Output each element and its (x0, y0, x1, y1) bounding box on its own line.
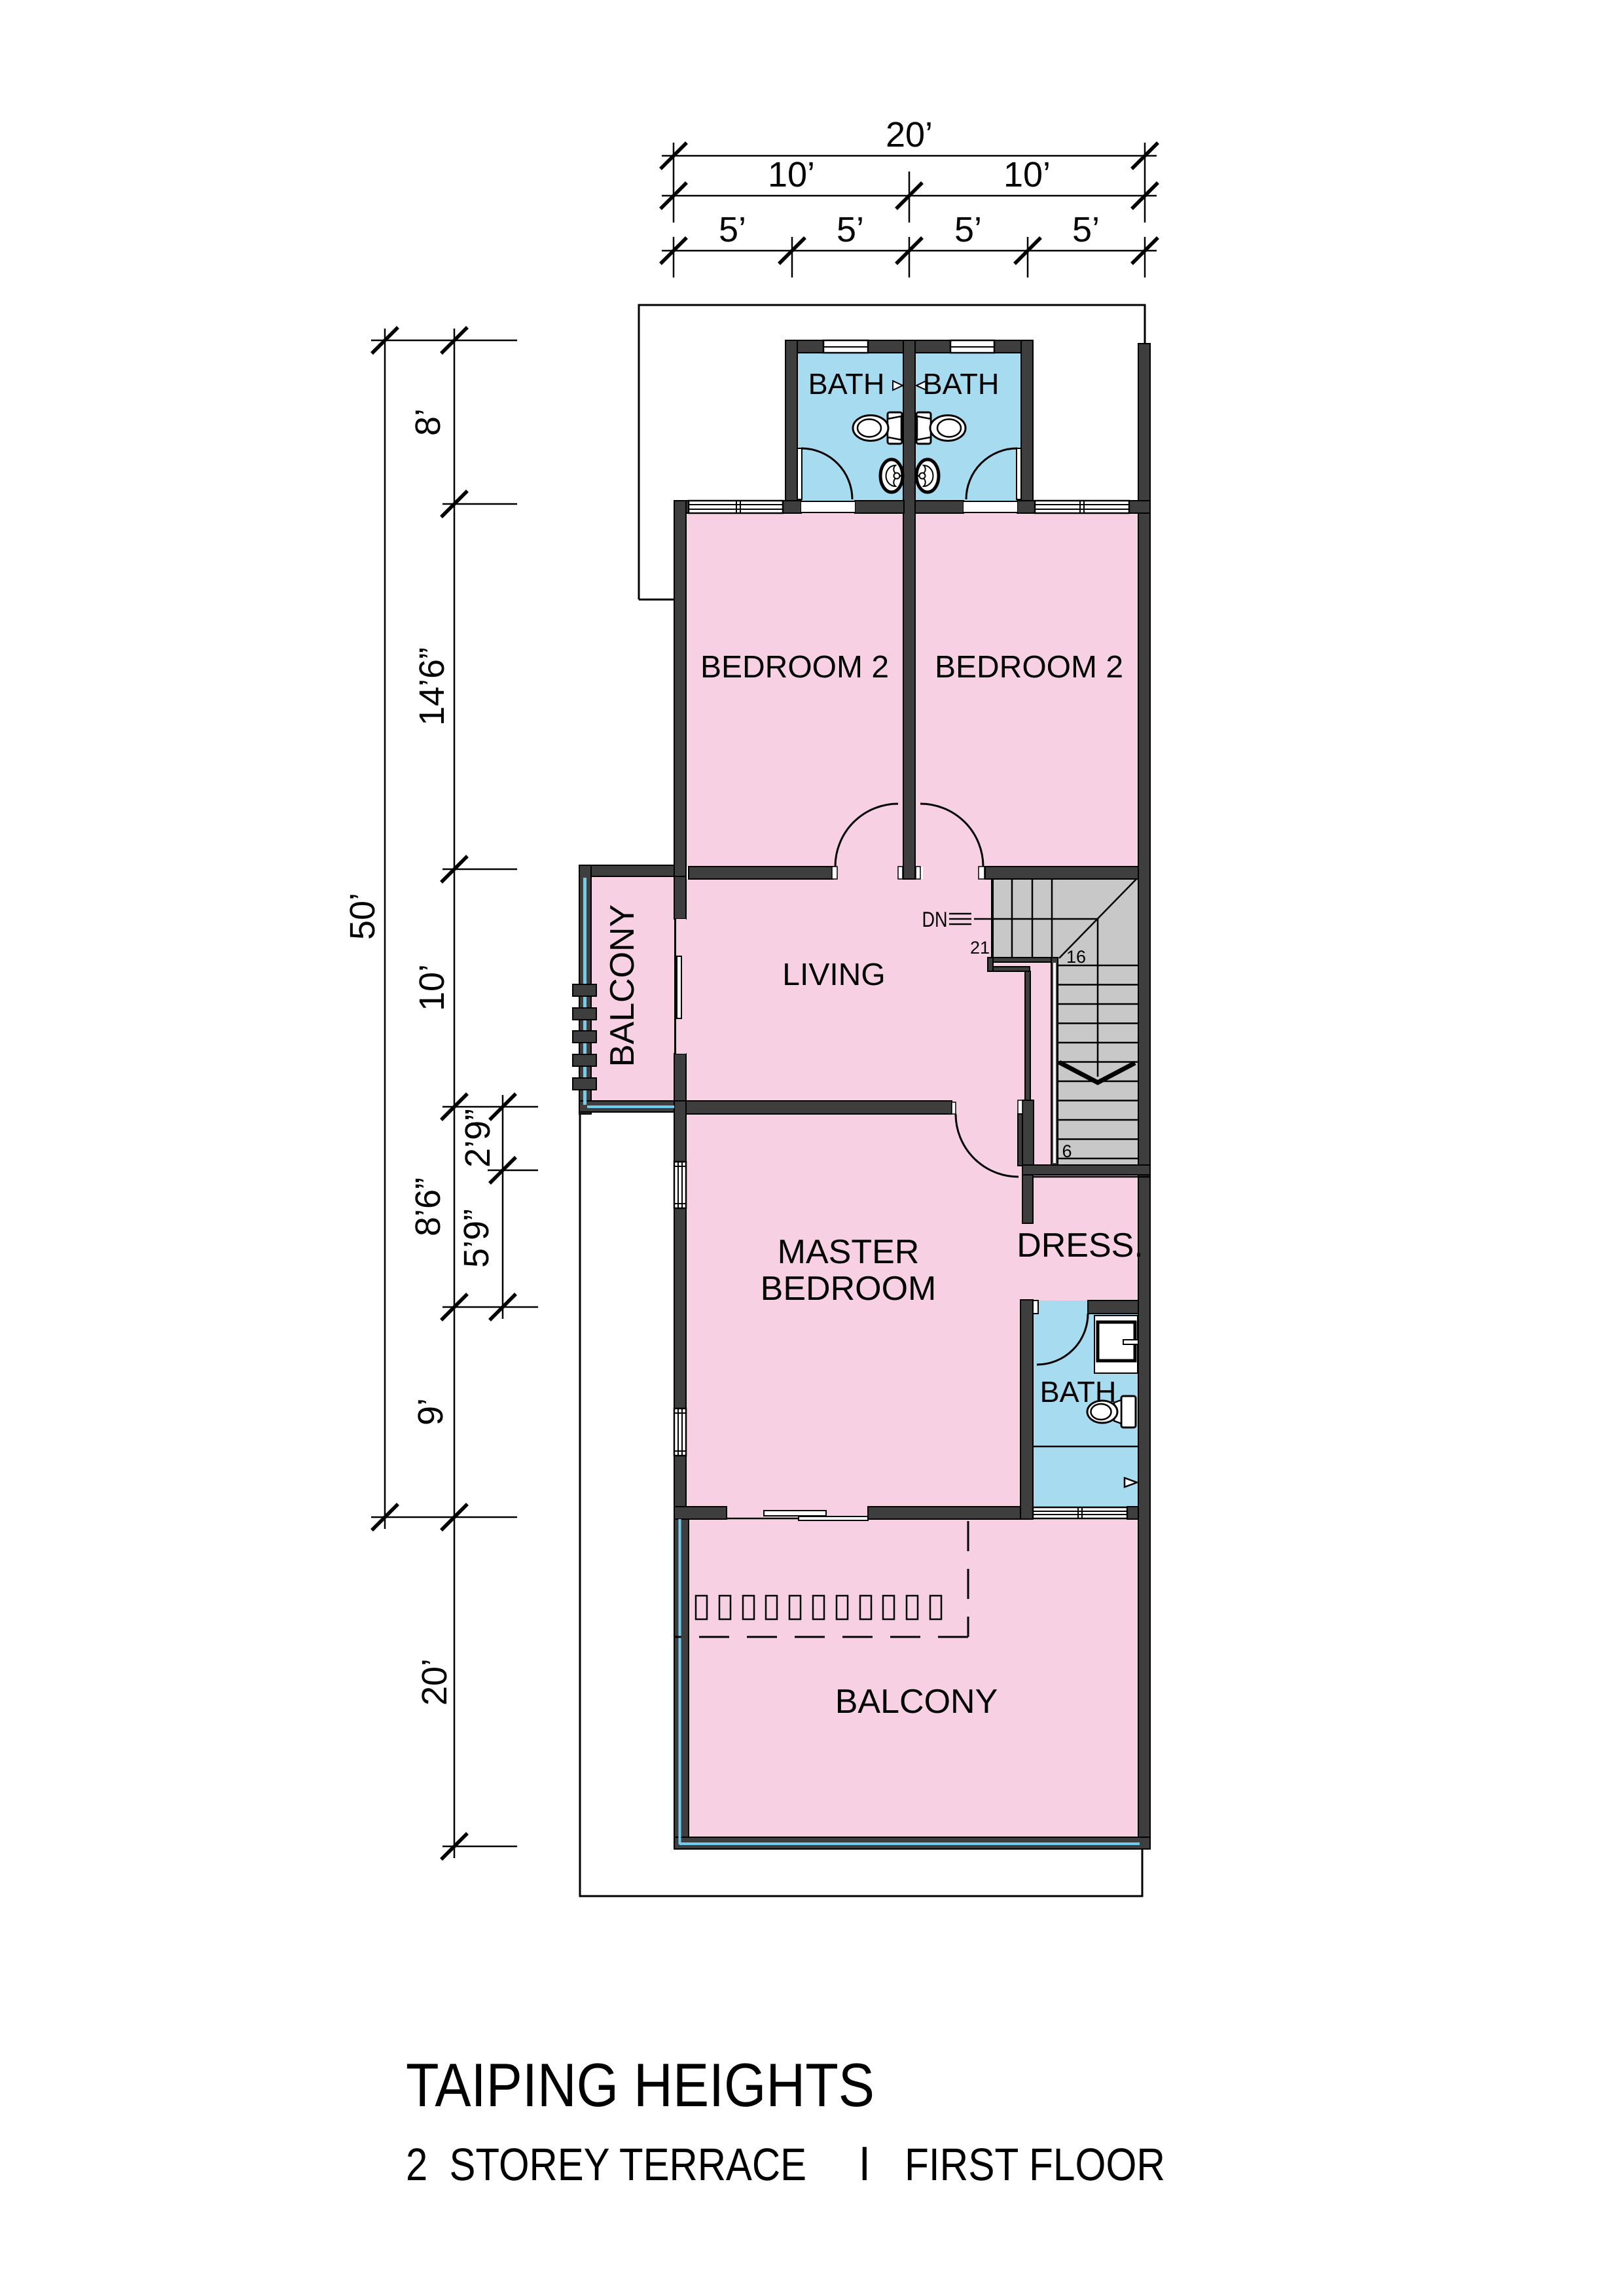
svg-text:TAIPING HEIGHTS: TAIPING HEIGHTS (406, 2051, 875, 2119)
svg-text:2 STOREY TERRACE: 2 STOREY TERRACE (406, 2139, 806, 2190)
svg-text:16: 16 (1066, 947, 1086, 967)
svg-text:l: l (859, 2139, 870, 2190)
svg-text:20’: 20’ (886, 115, 933, 154)
svg-text:BATH: BATH (1040, 1375, 1117, 1408)
svg-text:BALCONY: BALCONY (604, 905, 641, 1067)
svg-text:DRESS.: DRESS. (1017, 1227, 1144, 1265)
svg-text:MASTER: MASTER (778, 1233, 920, 1271)
svg-text:10’: 10’ (412, 964, 452, 1011)
svg-text:8’: 8’ (408, 408, 448, 436)
svg-text:5’: 5’ (1072, 210, 1100, 249)
svg-text:9’: 9’ (411, 1398, 450, 1426)
svg-text:5’: 5’ (954, 210, 982, 249)
svg-text:BALCONY: BALCONY (835, 1683, 998, 1721)
svg-text:BEDROOM 2: BEDROOM 2 (700, 650, 889, 685)
svg-text:DN: DN (922, 907, 947, 931)
svg-text:LIVING: LIVING (782, 958, 885, 992)
svg-text:5’9”: 5’9” (457, 1209, 496, 1268)
svg-text:50’: 50’ (343, 893, 382, 940)
svg-text:FIRST FLOOR: FIRST FLOOR (905, 2139, 1165, 2190)
svg-text:10’: 10’ (1003, 155, 1051, 194)
svg-text:BATH: BATH (808, 367, 885, 401)
svg-text:21: 21 (970, 938, 990, 958)
svg-text:2’9”: 2’9” (458, 1109, 497, 1168)
svg-text:10’: 10’ (768, 155, 815, 194)
svg-text:14’6”: 14’6” (412, 647, 452, 726)
svg-text:BEDROOM: BEDROOM (761, 1270, 937, 1308)
svg-text:BATH: BATH (923, 367, 1000, 401)
svg-text:6: 6 (1062, 1141, 1072, 1161)
svg-text:5’: 5’ (837, 210, 864, 249)
svg-text:8’6”: 8’6” (408, 1177, 448, 1236)
svg-text:5’: 5’ (719, 210, 746, 249)
svg-text:20’: 20’ (415, 1659, 454, 1706)
svg-text:BEDROOM 2: BEDROOM 2 (935, 650, 1123, 685)
